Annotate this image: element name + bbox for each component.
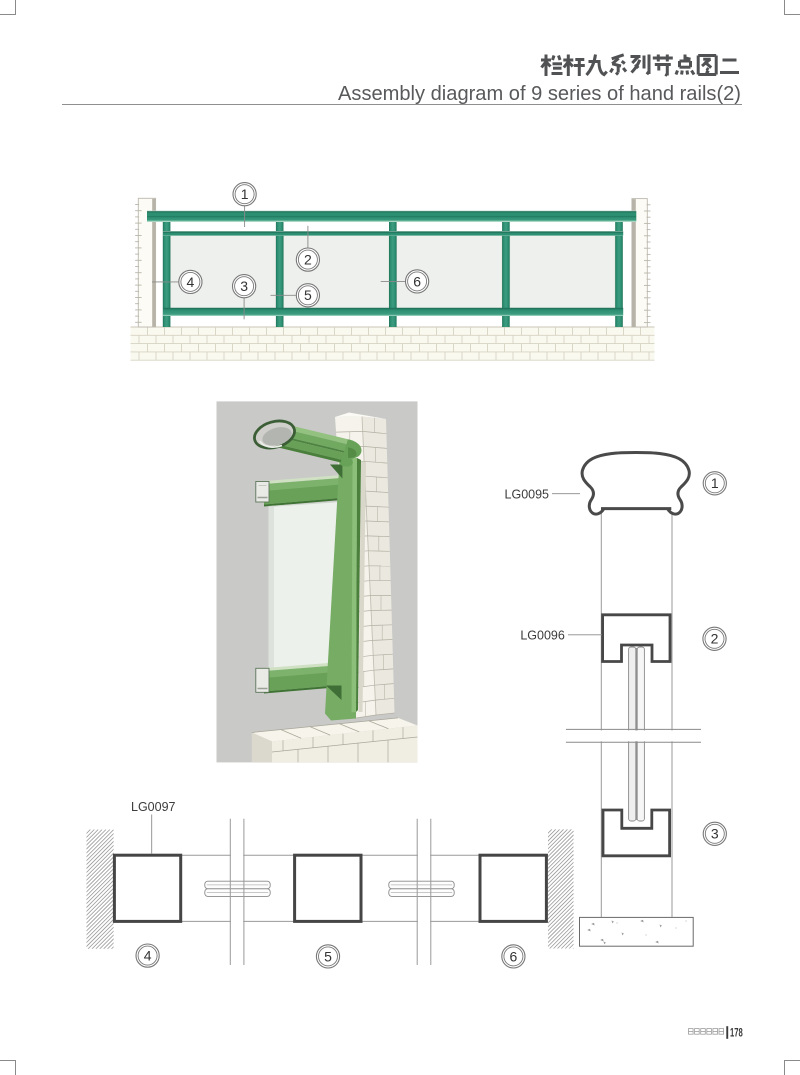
svg-text:3: 3 [240, 278, 248, 294]
svg-text:6: 6 [510, 948, 518, 964]
svg-text:5: 5 [304, 287, 312, 303]
svg-text:LG0096: LG0096 [520, 628, 565, 642]
svg-text:4: 4 [144, 948, 152, 964]
svg-text:5: 5 [324, 948, 332, 964]
svg-text:LG0095: LG0095 [505, 487, 550, 501]
svg-text:4: 4 [187, 274, 195, 290]
svg-text:178: 178 [730, 1027, 743, 1040]
svg-text:3: 3 [711, 826, 719, 842]
svg-text:2: 2 [304, 252, 312, 268]
svg-text:Assembly diagram of 9 series o: Assembly diagram of 9 series of hand rai… [338, 82, 741, 105]
svg-text:2: 2 [711, 631, 719, 647]
svg-text:1: 1 [711, 475, 719, 491]
svg-text:6: 6 [413, 273, 421, 289]
svg-text:1: 1 [241, 186, 249, 202]
svg-text:LG0097: LG0097 [131, 800, 176, 814]
